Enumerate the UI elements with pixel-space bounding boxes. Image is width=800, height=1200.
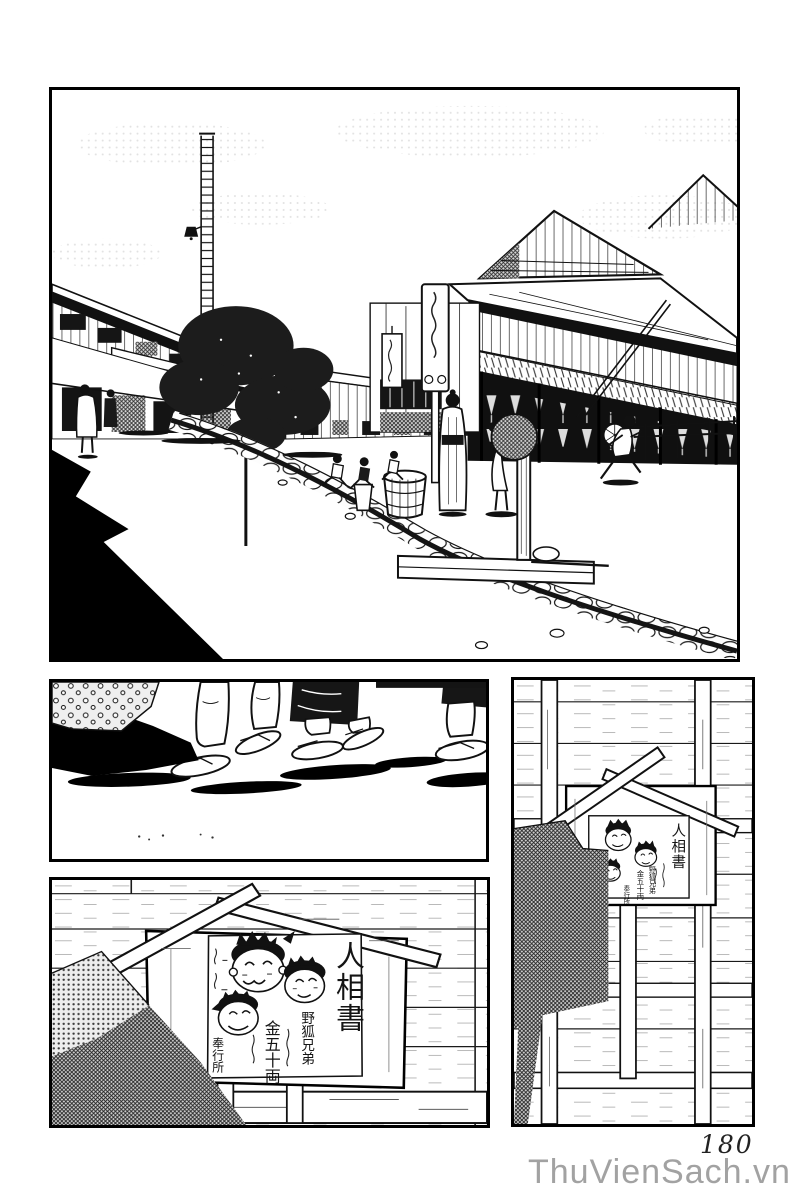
poster-title: 人相書 xyxy=(333,941,363,1034)
poster-reward-small: 金五十両 xyxy=(636,870,644,900)
poster-wall-art xyxy=(514,680,752,1124)
legs-pair-a xyxy=(170,682,283,781)
poster-reward: 金五十両 xyxy=(262,1020,279,1084)
manga-page: 人相書 野狐兄弟 金五十両 奉行所 xyxy=(0,0,800,1200)
watermark: ThuVienSach.vn xyxy=(528,1153,791,1192)
polka-dot-hem xyxy=(52,682,199,776)
foreground-shadow xyxy=(52,450,223,659)
shop-sign-banner xyxy=(382,326,402,387)
poster-suspects: 野狐兄弟 xyxy=(299,1011,313,1065)
poster-board-art xyxy=(52,880,487,1125)
legs-pair-c xyxy=(434,682,486,764)
hem-edge xyxy=(376,682,486,688)
panel-wanted-poster-wall: 人相書 野狐兄弟 金五十両 奉行所 xyxy=(511,677,755,1127)
legs-pair-b xyxy=(290,682,386,763)
panel-street-scene xyxy=(49,87,740,662)
poster-suspects-small: 野狐兄弟 xyxy=(648,866,655,894)
panel-walking-feet xyxy=(49,679,489,862)
walking-feet-art xyxy=(52,682,486,859)
sky-clouds xyxy=(52,106,737,269)
ground-speckles xyxy=(138,834,214,841)
street-scene-art xyxy=(52,90,737,659)
ditch-bridge xyxy=(398,556,594,584)
poster-issuer: 奉行所 xyxy=(211,1037,224,1073)
panel-wanted-poster-closeup: 人相書 野狐兄弟 金五十両 奉行所 xyxy=(49,877,490,1128)
poster-issuer-small: 奉行所 xyxy=(622,885,629,905)
poster-title-small: 人相書 xyxy=(669,823,684,870)
